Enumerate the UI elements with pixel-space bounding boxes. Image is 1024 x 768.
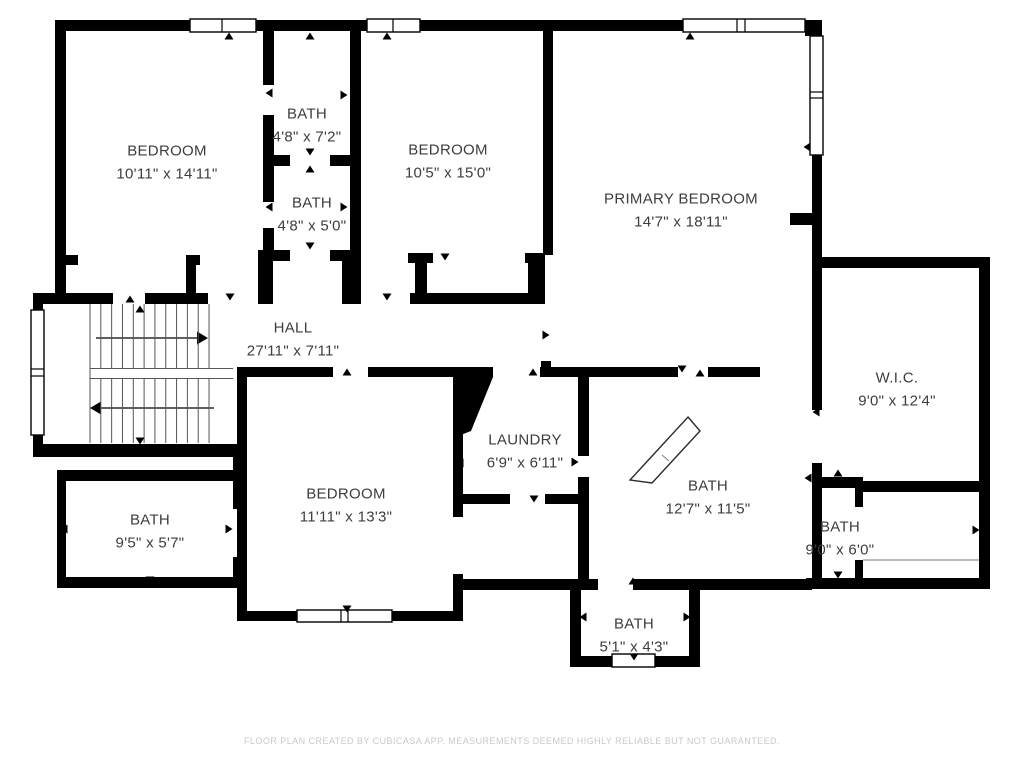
door-swing-marker [343,369,352,376]
door-swing-marker [383,294,392,301]
door-swing-marker [686,33,695,40]
room-name: BEDROOM [405,140,491,163]
room-label-hall: HALL 27'11" x 7'11" [247,318,340,363]
door-swing-marker [441,254,450,261]
room-dimensions: 10'5" x 15'0" [405,162,491,185]
room-dimensions: 9'0" x 6'0" [806,539,875,562]
room-label-bath-lower-middle: BATH 4'8" x 5'0" [278,193,347,238]
room-name: W.I.C. [858,368,936,391]
room-dimensions: 12'7" x 11'5" [665,498,750,521]
room-label-bath-upper-middle: BATH 4'8" x 7'2" [273,104,342,149]
door-swing-marker [225,33,234,40]
door-swing-marker [306,33,315,40]
room-name: HALL [247,318,340,341]
room-name: BATH [278,193,347,216]
floor-plan: BEDROOM 10'11" x 14'11" BATH 4'8" x 7'2"… [0,0,1024,768]
room-dimensions: 5'1" x 4'3" [600,636,669,659]
door-swing-marker [543,331,550,340]
door-swing-marker [226,525,233,534]
door-swing-marker [805,474,812,483]
room-label-bedroom-bottom: BEDROOM 11'11" x 13'3" [300,484,393,529]
door-swing-marker [306,166,315,173]
door-swing-marker [696,370,705,377]
room-dimensions: 10'11" x 14'11" [116,163,217,186]
room-dimensions: 27'11" x 7'11" [247,340,340,363]
shower-fixture [630,417,700,483]
room-name: BEDROOM [300,484,393,507]
room-dimensions: 9'5" x 5'7" [116,532,185,555]
door-swing-marker [136,438,145,445]
room-name: BATH [806,517,875,540]
door-swing-marker [266,203,273,212]
room-dimensions: 4'8" x 7'2" [273,126,342,149]
door-swing-marker [973,526,980,535]
room-name: BATH [665,476,750,499]
room-name: BATH [600,614,669,637]
room-dimensions: 14'7" x 18'11" [604,211,758,234]
room-name: LAUNDRY [487,430,563,453]
room-label-primary-bedroom: PRIMARY BEDROOM 14'7" x 18'11" [604,189,758,234]
room-dimensions: 4'8" x 5'0" [278,215,347,238]
room-label-bath-ensuite: BATH 12'7" x 11'5" [665,476,750,521]
door-swing-marker [834,572,843,579]
windows [31,19,823,667]
room-name: BATH [273,104,342,127]
door-swing-marker [572,458,579,467]
door-swing-marker [306,243,315,250]
door-swing-marker [266,89,273,98]
door-swing-marker [126,296,135,303]
room-dimensions: 9'0" x 12'4" [858,390,936,413]
door-swing-marker [529,369,538,376]
stairs-down-arrow [90,402,101,415]
room-label-bedroom-top-left: BEDROOM 10'11" x 14'11" [116,141,217,186]
room-label-bath-right: BATH 9'0" x 6'0" [806,517,875,562]
door-swing-marker [530,496,539,503]
room-dimensions: 11'11" x 13'3" [300,506,393,529]
door-swing-marker [383,33,392,40]
door-swing-marker [306,149,315,156]
door-swing-marker [136,306,145,313]
room-label-laundry: LAUNDRY 6'9" x 6'11" [487,430,563,475]
door-swing-marker [804,143,811,152]
door-swing-marker [834,470,843,477]
room-dimensions: 6'9" x 6'11" [487,452,563,475]
room-name: BATH [116,510,185,533]
room-label-bath-small-bottom: BATH 5'1" x 4'3" [600,614,669,659]
room-name: BEDROOM [116,141,217,164]
door-swing-marker [341,91,348,100]
staircase [90,304,233,443]
room-label-walk-in-closet: W.I.C. 9'0" x 12'4" [858,368,936,413]
disclaimer-text: FLOOR PLAN CREATED BY CUBICASA APP. MEAS… [0,736,1024,746]
room-name: PRIMARY BEDROOM [604,189,758,212]
door-swing-marker [226,294,235,301]
door-swing-marker [678,366,687,373]
room-label-bath-bottom-left: BATH 9'5" x 5'7" [116,510,185,555]
room-label-bedroom-top-middle: BEDROOM 10'5" x 15'0" [405,140,491,185]
